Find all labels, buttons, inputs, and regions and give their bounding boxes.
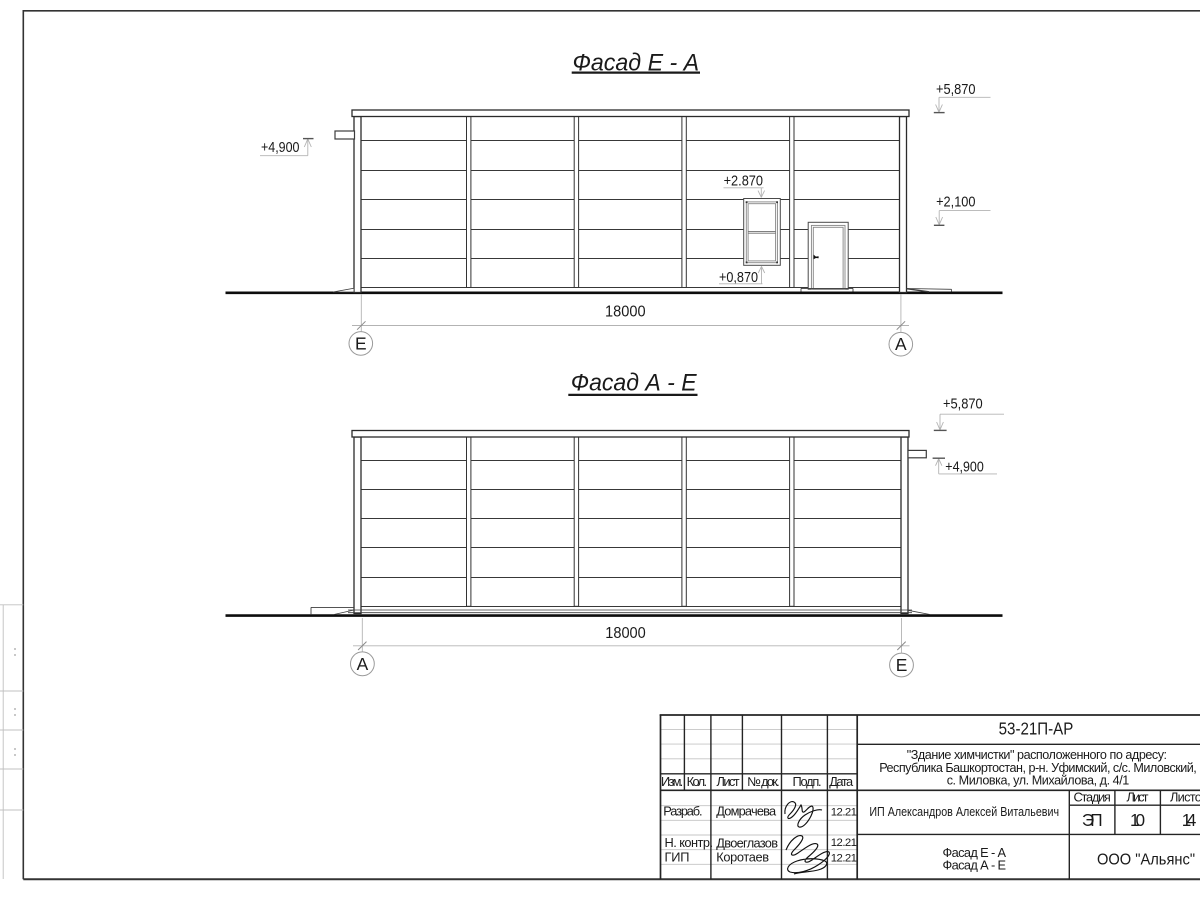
svg-text:ИП Александров Алексей Виталье: ИП Александров Алексей Витальевич — [869, 804, 1059, 819]
svg-text:18000: 18000 — [605, 625, 646, 642]
svg-text:Двоеглазов: Двоеглазов — [716, 836, 778, 851]
svg-text:Изм.: Изм. — [661, 774, 683, 789]
svg-text:ГИП: ГИП — [665, 849, 690, 864]
svg-text:Коротаев: Коротаев — [716, 849, 769, 864]
svg-text:Фасад А - Е: Фасад А - Е — [571, 370, 698, 397]
svg-text:18000: 18000 — [605, 304, 646, 321]
svg-text:А: А — [357, 654, 369, 674]
svg-text:+5,870: +5,870 — [936, 82, 976, 98]
svg-text:ООО "Альянс": ООО "Альянс" — [1097, 851, 1195, 868]
svg-text:14: 14 — [1182, 810, 1197, 830]
svg-text:Лист: Лист — [1127, 790, 1149, 805]
svg-text:Е: Е — [896, 655, 908, 675]
svg-text:Дата: Дата — [829, 774, 854, 789]
svg-text:+2.870: +2.870 — [724, 173, 763, 189]
svg-text:Подп.: Подп. — [793, 774, 822, 789]
svg-text:+5,870: +5,870 — [943, 397, 983, 413]
svg-text:Н. контр.: Н. контр. — [665, 835, 714, 850]
svg-text:10: 10 — [1130, 810, 1145, 830]
svg-text:Листов: Листов — [1170, 790, 1200, 805]
svg-text:53-21П-АР: 53-21П-АР — [999, 719, 1074, 739]
svg-text:+4,900: +4,900 — [261, 140, 300, 156]
svg-text:+2,100: +2,100 — [936, 195, 975, 211]
svg-text:12.21: 12.21 — [831, 837, 857, 849]
svg-text:12.21: 12.21 — [831, 852, 857, 864]
svg-text:Стадия: Стадия — [1074, 790, 1111, 805]
svg-text:Фасад А - Е: Фасад А - Е — [943, 858, 1007, 873]
svg-text:Домрачева: Домрачева — [716, 803, 777, 818]
svg-text:с. Миловка, ул. Михайлова, д.: с. Миловка, ул. Михайлова, д. 4/1 — [947, 773, 1130, 787]
svg-text:А: А — [895, 334, 907, 354]
svg-text:ЭП: ЭП — [1082, 810, 1103, 830]
svg-text:№ док.: № док. — [747, 774, 780, 789]
svg-text:Лист: Лист — [717, 774, 740, 789]
svg-text:+4,900: +4,900 — [945, 460, 984, 476]
svg-text:12.21: 12.21 — [831, 806, 857, 818]
svg-text:Е: Е — [355, 333, 367, 353]
svg-text:Кол.: Кол. — [687, 774, 708, 789]
svg-text:Разраб.: Разраб. — [663, 803, 702, 818]
